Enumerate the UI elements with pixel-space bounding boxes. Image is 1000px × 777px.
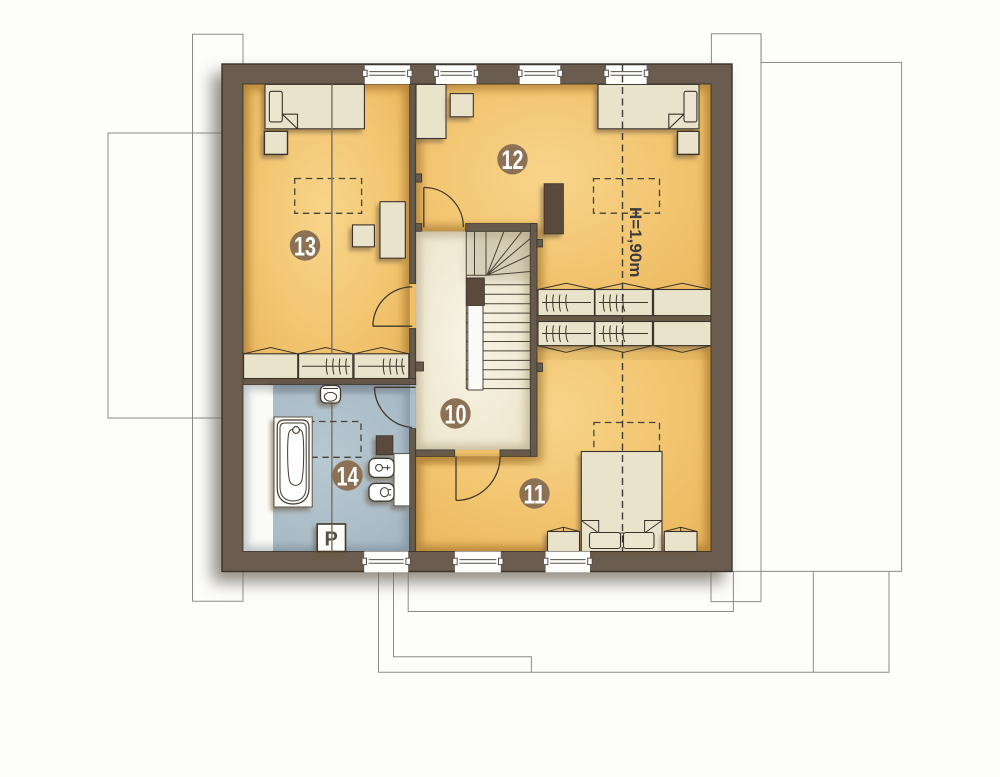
svg-text:12: 12: [502, 145, 524, 175]
svg-text:10: 10: [445, 399, 467, 429]
svg-text:H=1,90m: H=1,90m: [626, 207, 645, 277]
svg-text:14: 14: [337, 461, 359, 491]
svg-text:13: 13: [294, 231, 316, 261]
svg-text:11: 11: [524, 479, 546, 509]
